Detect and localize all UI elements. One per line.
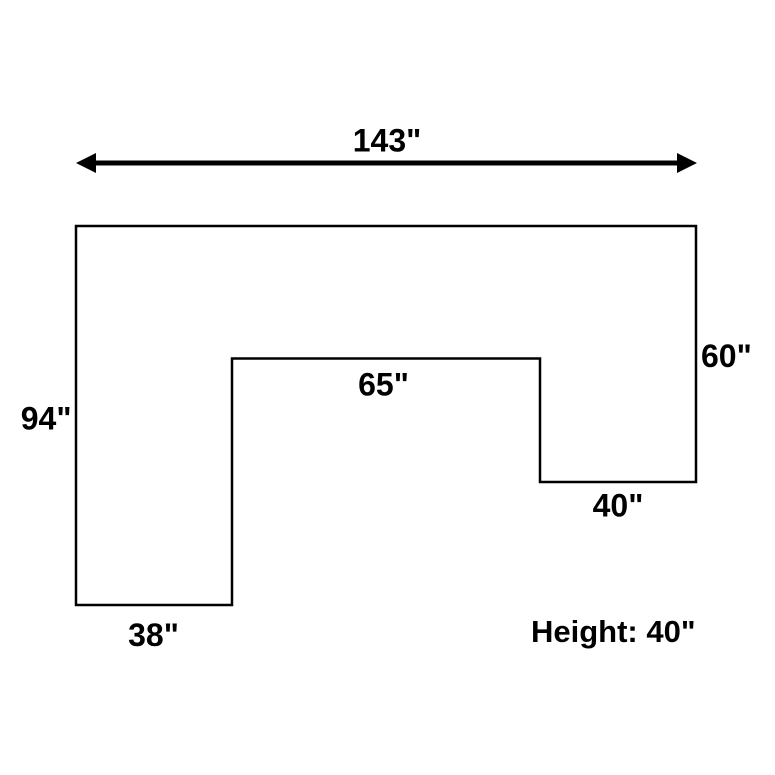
svg-text:65": 65" (358, 367, 409, 403)
svg-text:143": 143" (353, 123, 422, 159)
svg-text:Height: 40": Height: 40" (531, 614, 696, 649)
svg-text:40": 40" (593, 488, 644, 524)
svg-text:38": 38" (128, 617, 179, 653)
svg-text:60": 60" (701, 338, 752, 374)
svg-text:94": 94" (21, 401, 72, 437)
